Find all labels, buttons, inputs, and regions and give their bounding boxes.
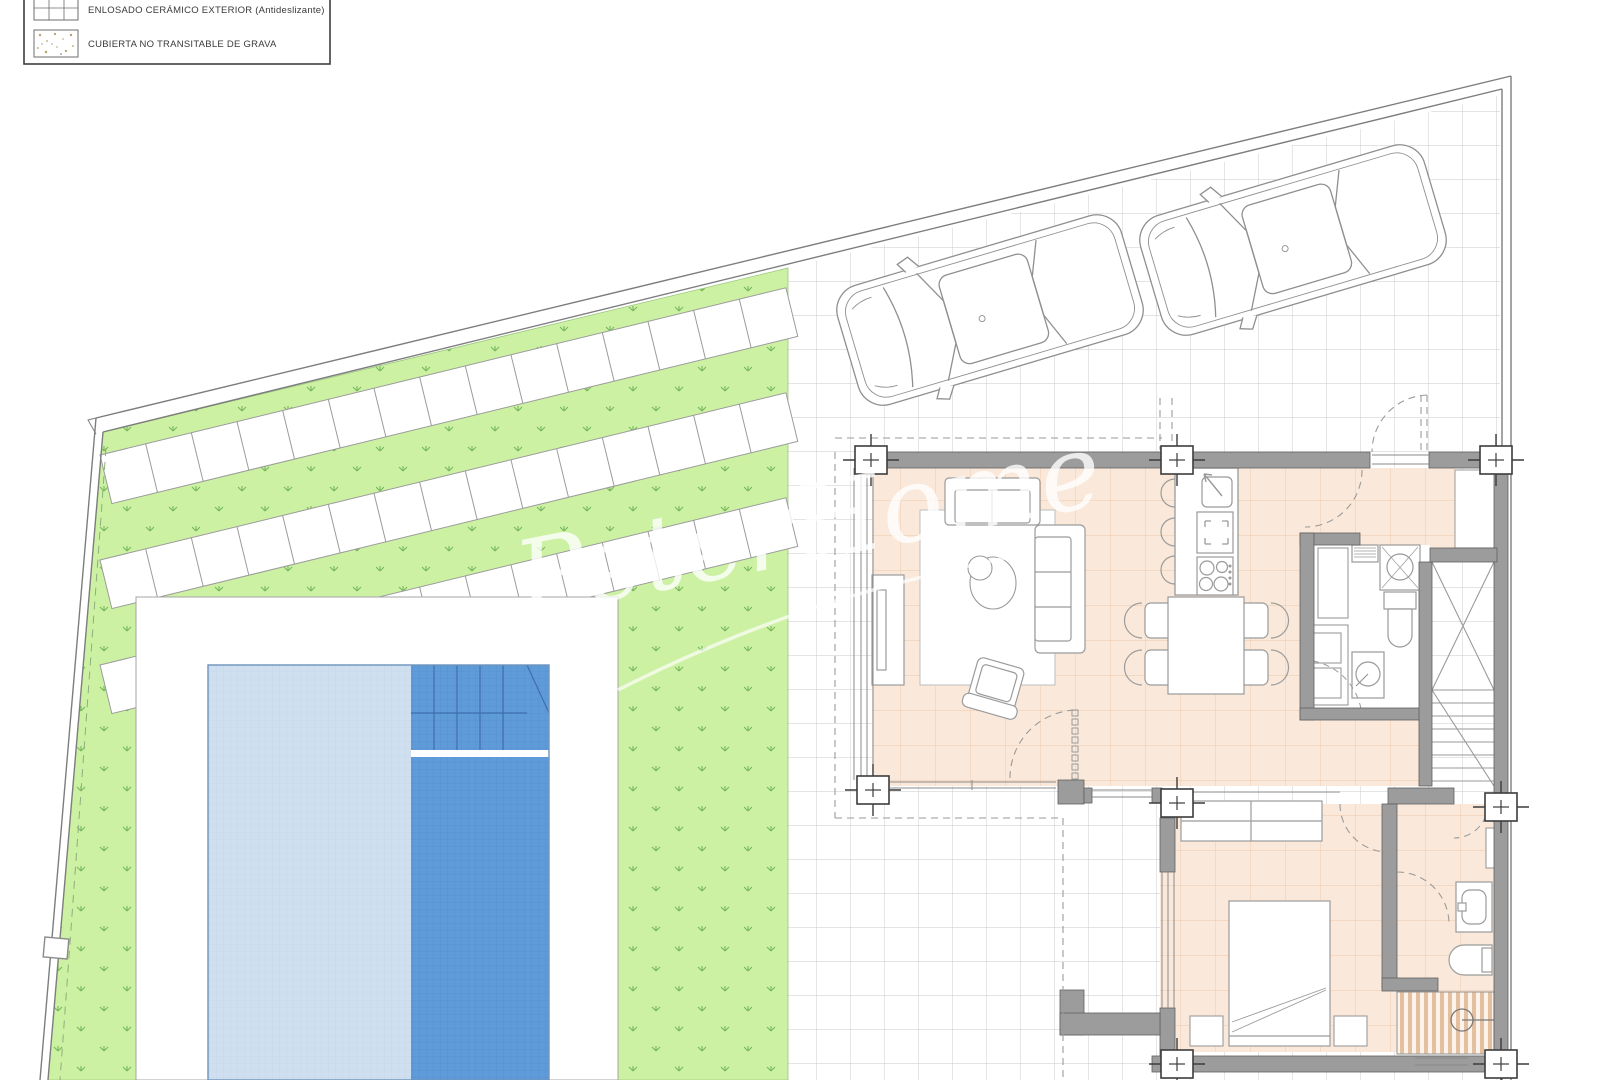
toilet <box>1449 945 1492 975</box>
tv-unit <box>872 575 904 685</box>
sofa <box>1035 525 1085 653</box>
floor-plan-page: ENLOSADO CERÁMICO EXTERIOR (Antideslizan… <box>0 0 1620 1080</box>
pool-step-edge <box>411 750 549 757</box>
legend-label-ceramic: ENLOSADO CERÁMICO EXTERIOR (Antideslizan… <box>88 5 325 16</box>
gate-post <box>43 937 69 959</box>
bathroom-sink <box>1456 882 1492 932</box>
entry-closet <box>1455 470 1495 548</box>
wc-basin <box>1352 652 1384 698</box>
ceramic-tile-swatch <box>34 0 78 20</box>
legend-label-gravel: CUBIERTA NO TRANSITABLE DE GRAVA <box>88 39 277 50</box>
nightstand <box>1190 1016 1223 1046</box>
wardrobe <box>1181 801 1322 841</box>
oven <box>1197 512 1233 553</box>
kitchen-sink <box>1202 474 1232 507</box>
double-bed <box>1229 901 1330 1046</box>
legend: ENLOSADO CERÁMICO EXTERIOR (Antideslizan… <box>24 0 330 64</box>
walk-in-shower <box>1397 992 1494 1054</box>
dining-table <box>1168 597 1244 694</box>
site-plan-drawing: ENLOSADO CERÁMICO EXTERIOR (Antideslizan… <box>0 0 1620 1080</box>
wall-bed-bath <box>1382 804 1397 988</box>
swimming-pool <box>208 665 549 1080</box>
patio-wall <box>1060 1013 1160 1035</box>
wc-toilet <box>1384 592 1416 647</box>
pool-shallow-zone <box>208 665 411 1080</box>
nightstand <box>1334 1016 1367 1046</box>
cooktop <box>1197 557 1233 595</box>
